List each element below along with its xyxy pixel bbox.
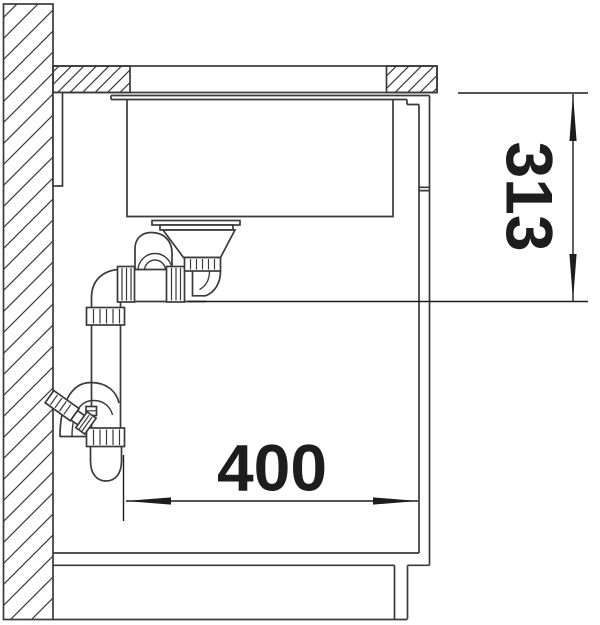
plinth — [395, 565, 408, 619]
dimension-400: 400 — [124, 431, 419, 522]
countertop — [53, 66, 437, 93]
wall-section — [4, 4, 54, 620]
drawing-canvas: 313 400 — [0, 0, 600, 625]
sink-installation-drawing: 313 400 — [0, 0, 600, 625]
sink-bowl — [127, 100, 393, 217]
outlet-elbow-inner — [200, 271, 210, 290]
dimension-horizontal-label: 400 — [217, 431, 327, 505]
line-art — [4, 4, 438, 620]
overflow-dome — [135, 233, 172, 271]
dim-313-arrow-down — [569, 254, 576, 301]
dimensions: 313 400 — [124, 93, 589, 521]
trap-cup — [91, 447, 122, 482]
cabinet-door — [408, 96, 430, 566]
dim-313-arrow-up — [569, 94, 576, 141]
dim-400-arrow-left — [126, 497, 171, 504]
dimension-313: 313 — [188, 93, 588, 302]
sink-flange — [111, 96, 430, 105]
mounting-batten — [53, 93, 63, 187]
downpipe-coupling — [87, 308, 125, 326]
drain-flange — [152, 221, 240, 231]
dim-400-arrow-right — [373, 497, 418, 504]
dimension-vertical-label: 313 — [493, 141, 567, 251]
pipe-coupling-left — [118, 267, 135, 303]
strainer-body — [163, 230, 235, 258]
pipe-coupling-right — [167, 267, 185, 303]
countertop-hatch-left — [53, 66, 130, 93]
trap-coupling — [87, 428, 125, 447]
countertop-hatch-right — [387, 66, 438, 93]
drain-assembly — [44, 221, 240, 482]
cabinet-bottom — [53, 553, 419, 565]
strainer-nut — [185, 258, 221, 272]
